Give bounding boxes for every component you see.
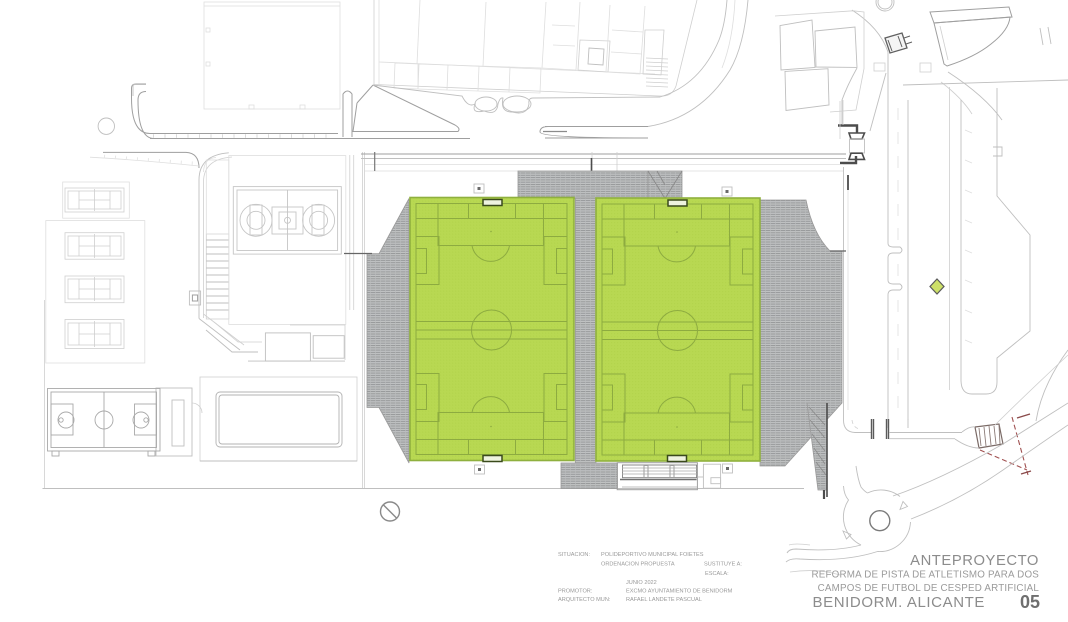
svg-text:SITUACION:: SITUACION: <box>558 552 590 558</box>
svg-text:JUNIO 2022: JUNIO 2022 <box>626 580 657 586</box>
svg-text:ANTEPROYECTO: ANTEPROYECTO <box>910 553 1039 569</box>
svg-text:REFORMA DE PISTA DE ATLETISMO: REFORMA DE PISTA DE ATLETISMO PARA DOS <box>811 570 1039 581</box>
svg-text:POLIDEPORTIVO MUNICIPAL FOIETE: POLIDEPORTIVO MUNICIPAL FOIETES <box>601 552 704 558</box>
svg-text:PROMOTOR:: PROMOTOR: <box>558 589 593 595</box>
svg-text:ESCALA:: ESCALA: <box>705 571 729 577</box>
svg-text:RAFAEL LANDETE PASCUAL: RAFAEL LANDETE PASCUAL <box>626 597 702 603</box>
svg-text:SUSTITUYE A:: SUSTITUYE A: <box>704 562 742 568</box>
svg-text:EXCMO AYUNTAMIENTO DE BENIDORM: EXCMO AYUNTAMIENTO DE BENIDORM <box>626 589 733 595</box>
svg-text:CAMPOS DE FUTBOL DE CESPED ART: CAMPOS DE FUTBOL DE CESPED ARTIFICIAL <box>818 583 1040 594</box>
svg-text:05: 05 <box>1020 592 1040 612</box>
svg-text:ORDENACION PROPUESTA: ORDENACION PROPUESTA <box>601 562 675 568</box>
svg-text:ARQUITECTO MUN:: ARQUITECTO MUN: <box>558 597 611 603</box>
svg-text:BENIDORM. ALICANTE: BENIDORM. ALICANTE <box>813 594 986 611</box>
